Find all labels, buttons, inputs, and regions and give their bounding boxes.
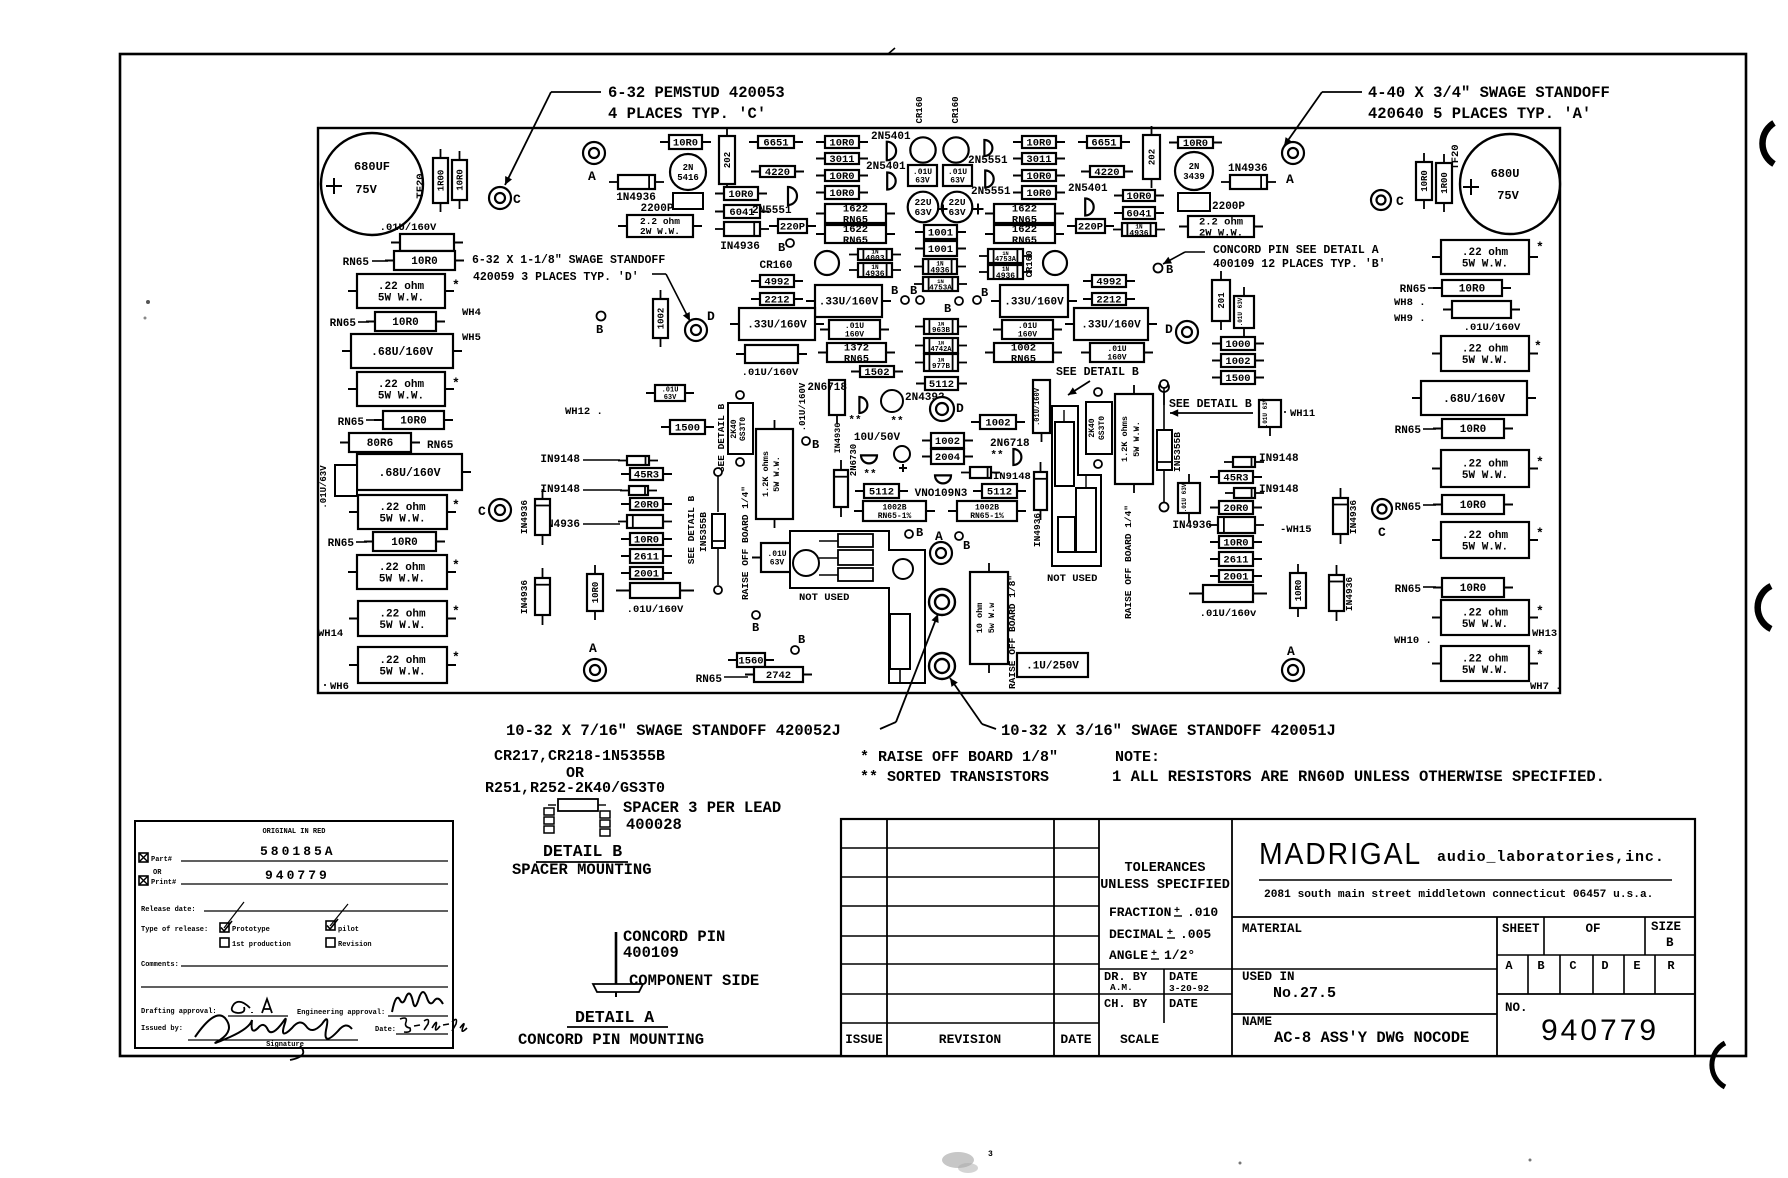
svg-text:.22 ohm: .22 ohm <box>379 655 426 667</box>
svg-text:.33U/160V: .33U/160V <box>819 297 879 309</box>
svg-text:10R0: 10R0 <box>673 138 698 150</box>
svg-text:63V: 63V <box>948 207 965 218</box>
svg-text:5W W.W.: 5W W.W. <box>1462 470 1508 482</box>
svg-text:Type of release:: Type of release: <box>141 926 208 934</box>
svg-text:pilot: pilot <box>338 926 359 934</box>
svg-text:80R6: 80R6 <box>367 438 393 450</box>
svg-text:IN4936: IN4936 <box>833 423 843 454</box>
svg-text:R251,R252-2K40/GS3T0: R251,R252-2K40/GS3T0 <box>485 780 665 797</box>
svg-text:*: * <box>1534 339 1542 354</box>
svg-text:2N5551: 2N5551 <box>971 186 1011 198</box>
svg-text:Part#: Part# <box>151 856 172 864</box>
svg-text:DECIMAL: DECIMAL <box>1109 927 1164 942</box>
svg-text:10-32 X 3/16" SWAGE STANDOFF 4: 10-32 X 3/16" SWAGE STANDOFF 420051J <box>1001 722 1336 740</box>
svg-text:B: B <box>752 621 759 635</box>
svg-text:75V: 75V <box>1497 189 1519 203</box>
svg-text:RN65: RN65 <box>1011 354 1036 366</box>
svg-text:ISSUE: ISSUE <box>845 1033 883 1047</box>
svg-text:2K40: 2K40 <box>730 419 739 438</box>
svg-text:Issued by:: Issued by: <box>141 1025 183 1033</box>
svg-text:WH7 .: WH7 . <box>1530 681 1562 693</box>
svg-text:6651: 6651 <box>1091 138 1116 150</box>
svg-text:10R0: 10R0 <box>591 582 601 604</box>
svg-text:2742: 2742 <box>766 670 791 682</box>
svg-text:4753A: 4753A <box>995 256 1017 264</box>
svg-text:B: B <box>596 323 603 337</box>
svg-text:5W W.W.: 5W W.W. <box>1132 421 1142 457</box>
svg-text:5416: 5416 <box>677 173 699 183</box>
svg-text:5W W.W.: 5W W.W. <box>1462 355 1508 367</box>
svg-text:*: * <box>1536 648 1544 663</box>
svg-text:10R0: 10R0 <box>411 256 437 268</box>
svg-text:10R0: 10R0 <box>1460 583 1486 595</box>
svg-text:RN65: RN65 <box>1395 584 1422 596</box>
svg-text:45R3: 45R3 <box>634 470 659 482</box>
svg-text:* RAISE OFF BOARD 1/8": * RAISE OFF BOARD 1/8" <box>860 749 1058 766</box>
svg-text:4936: 4936 <box>930 267 949 276</box>
svg-text:CR160: CR160 <box>915 96 925 123</box>
svg-text:WH11: WH11 <box>1290 408 1315 420</box>
svg-text:680U: 680U <box>1491 167 1520 181</box>
svg-text:5W W.W.: 5W W.W. <box>379 667 425 679</box>
svg-text:2N5551: 2N5551 <box>752 205 792 217</box>
svg-text:NO.: NO. <box>1505 1001 1528 1015</box>
svg-text:**: ** <box>890 416 903 428</box>
svg-text:6041: 6041 <box>1126 209 1151 221</box>
svg-text:10R0: 10R0 <box>1294 580 1304 602</box>
svg-text:1502: 1502 <box>864 367 889 379</box>
svg-text:2N5401: 2N5401 <box>1068 183 1108 195</box>
svg-text:5W W.W.: 5W W.W. <box>1462 542 1508 554</box>
svg-text:C: C <box>513 192 521 207</box>
svg-text:.01U 63V: .01U 63V <box>1262 398 1269 427</box>
svg-text:63V: 63V <box>950 176 965 185</box>
svg-text:RN65: RN65 <box>1395 502 1422 514</box>
svg-text:RN65: RN65 <box>338 417 365 429</box>
svg-text:RAISE OFF BOARD 1/4": RAISE OFF BOARD 1/4" <box>740 486 751 600</box>
svg-text:.01U/160V: .01U/160V <box>627 604 684 616</box>
svg-text:-WH15: -WH15 <box>1280 524 1312 536</box>
svg-text:RN65: RN65 <box>844 354 869 366</box>
svg-text:220P: 220P <box>780 222 805 234</box>
svg-text:IN4936: IN4936 <box>519 580 530 615</box>
svg-text:10R0: 10R0 <box>1460 424 1486 436</box>
svg-text:.33U/160V: .33U/160V <box>747 320 807 332</box>
svg-text:4992: 4992 <box>764 277 789 289</box>
svg-text:1002: 1002 <box>1225 356 1250 368</box>
svg-text:B: B <box>1537 959 1544 973</box>
svg-text:A: A <box>1286 172 1294 187</box>
svg-text:SIZE: SIZE <box>1651 920 1681 934</box>
svg-text:B: B <box>910 284 917 298</box>
svg-text:IN4936: IN4936 <box>1348 500 1359 535</box>
svg-text:1500: 1500 <box>675 423 700 435</box>
svg-text:RN65: RN65 <box>843 235 868 247</box>
svg-text:Release date:: Release date: <box>141 906 196 914</box>
svg-text:SCALE: SCALE <box>1120 1032 1159 1047</box>
svg-text:NAME: NAME <box>1242 1015 1272 1029</box>
svg-text:GS3T0: GS3T0 <box>739 417 748 441</box>
svg-text:160V: 160V <box>1018 330 1037 339</box>
svg-text:Comments:: Comments: <box>141 961 179 969</box>
svg-text:NOT USED: NOT USED <box>1047 573 1097 585</box>
svg-text:2N5401: 2N5401 <box>871 131 911 143</box>
svg-text:10R0: 10R0 <box>1459 284 1485 296</box>
svg-text:B: B <box>778 241 785 255</box>
svg-text:WH13: WH13 <box>1532 628 1557 640</box>
svg-text:45R3: 45R3 <box>1223 473 1248 485</box>
svg-text:Print#: Print# <box>151 879 176 887</box>
svg-text:B: B <box>981 286 988 300</box>
svg-text:63V: 63V <box>915 176 930 185</box>
svg-text:WH6: WH6 <box>330 681 349 693</box>
svg-text:IN4936: IN4936 <box>1032 513 1043 548</box>
svg-text:*: * <box>452 604 460 619</box>
svg-text:C: C <box>1378 525 1386 540</box>
svg-text:.33U/160V: .33U/160V <box>1004 297 1064 309</box>
svg-text:580185A: 580185A <box>260 844 336 859</box>
svg-text:TF20: TF20 <box>415 173 427 198</box>
svg-text:10R0: 10R0 <box>829 188 854 200</box>
svg-text:.01U/160V: .01U/160V <box>1034 387 1042 426</box>
svg-text:4753A: 4753A <box>929 285 952 293</box>
svg-text:RN65: RN65 <box>696 674 723 686</box>
svg-text:1001: 1001 <box>928 244 953 256</box>
svg-text:3: 3 <box>988 1150 993 1159</box>
svg-text:CR160: CR160 <box>951 96 961 123</box>
svg-text:1560: 1560 <box>738 656 763 668</box>
svg-text:4992: 4992 <box>1096 277 1121 289</box>
svg-text:*: * <box>1536 604 1544 619</box>
svg-text:.33U/160V: .33U/160V <box>1081 320 1141 332</box>
svg-text:IN4936: IN4936 <box>1172 520 1212 532</box>
svg-text:400109: 400109 <box>623 944 679 962</box>
svg-text:63V: 63V <box>664 394 677 402</box>
svg-text:Date:: Date: <box>375 1026 396 1034</box>
svg-text:NOTE:: NOTE: <box>1115 749 1160 766</box>
svg-text:202: 202 <box>1148 149 1158 165</box>
svg-text:.01U 63V: .01U 63V <box>1181 483 1188 512</box>
svg-text:B: B <box>798 633 805 647</box>
svg-text:2N5551: 2N5551 <box>968 155 1008 167</box>
svg-text:A: A <box>935 529 943 544</box>
svg-text:A.M.: A.M. <box>1110 982 1133 993</box>
svg-text:COMPONENT SIDE: COMPONENT SIDE <box>629 972 759 990</box>
svg-text:MADRIGAL: MADRIGAL <box>1259 836 1422 871</box>
svg-text:160V: 160V <box>845 330 864 339</box>
svg-text:10R0: 10R0 <box>392 317 418 329</box>
svg-text:IN9148: IN9148 <box>1259 453 1299 465</box>
svg-text:A: A <box>588 169 596 184</box>
svg-text:D: D <box>956 401 964 416</box>
svg-text:1R00: 1R00 <box>437 170 447 192</box>
svg-text:3011: 3011 <box>1026 154 1051 166</box>
svg-text:220P: 220P <box>1078 222 1103 234</box>
svg-text:WH10 .: WH10 . <box>1394 635 1432 647</box>
svg-text:5w W.w: 5w W.w <box>987 602 997 634</box>
svg-text:420640 5 PLACES TYP. 'A': 420640 5 PLACES TYP. 'A' <box>1368 105 1591 123</box>
svg-text:B: B <box>963 539 970 553</box>
svg-text:1 ALL RESISTORS ARE RN60D UNL: 1 ALL RESISTORS ARE RN60D UNLESS OTHERWI… <box>1112 768 1605 786</box>
svg-text:GS3T0: GS3T0 <box>1098 416 1107 440</box>
svg-text:.22 ohm: .22 ohm <box>1462 608 1509 620</box>
svg-text:RN65: RN65 <box>427 440 454 452</box>
svg-text:CR160: CR160 <box>1025 250 1035 277</box>
svg-text:1.2K ohms: 1.2K ohms <box>1120 416 1130 462</box>
svg-text:2212: 2212 <box>1096 295 1121 307</box>
svg-text:10R0: 10R0 <box>829 171 854 183</box>
svg-text:.22 ohm: .22 ohm <box>379 562 426 574</box>
svg-text:1002: 1002 <box>985 418 1010 430</box>
svg-text:10-32 X 7/16" SWAGE STANDOFF 4: 10-32 X 7/16" SWAGE STANDOFF 420052J <box>506 722 841 740</box>
svg-text:10R0: 10R0 <box>400 416 426 428</box>
svg-text:DATE: DATE <box>1060 1032 1091 1047</box>
svg-text:.01U/160V: .01U/160V <box>380 222 437 234</box>
svg-text:2001: 2001 <box>634 569 659 581</box>
svg-text:10R0: 10R0 <box>1183 138 1208 150</box>
svg-text:.01U/160V: .01U/160V <box>1464 322 1521 334</box>
svg-text:5112: 5112 <box>869 487 894 499</box>
svg-text:SEE DETAIL B: SEE DETAIL B <box>716 404 727 473</box>
svg-text:RN65: RN65 <box>343 257 370 269</box>
svg-text:6041: 6041 <box>729 207 754 219</box>
svg-text:.68U/160V: .68U/160V <box>371 346 433 359</box>
svg-text:1001: 1001 <box>928 228 953 240</box>
svg-text:*: * <box>452 498 460 513</box>
svg-text:1500: 1500 <box>1225 373 1250 385</box>
svg-text:SPACER 3 PER LEAD: SPACER 3 PER LEAD <box>623 799 781 817</box>
svg-text:Prototype: Prototype <box>232 926 270 934</box>
svg-text:IN9148: IN9148 <box>540 484 580 496</box>
svg-text:DETAIL B: DETAIL B <box>543 842 622 861</box>
svg-text:ORIGINAL IN RED: ORIGINAL IN RED <box>262 828 325 836</box>
svg-text:Signature: Signature <box>266 1041 304 1049</box>
svg-text:Revision: Revision <box>338 941 372 949</box>
svg-text:RN65: RN65 <box>330 318 357 330</box>
svg-text:AC-8 ASS'Y DWG NOCODE: AC-8 ASS'Y DWG NOCODE <box>1274 1029 1469 1047</box>
svg-text:2W W.W.: 2W W.W. <box>1199 228 1243 240</box>
svg-text:977B: 977B <box>932 363 951 371</box>
svg-text:C: C <box>478 504 486 519</box>
svg-text:2611: 2611 <box>1223 555 1248 567</box>
svg-text:Drafting approval:: Drafting approval: <box>141 1008 217 1016</box>
svg-text:TOLERANCES: TOLERANCES <box>1124 861 1205 876</box>
svg-text:.010: .010 <box>1187 905 1218 920</box>
svg-text:B: B <box>1166 263 1173 277</box>
svg-text:5W W.W.: 5W W.W. <box>379 514 425 526</box>
svg-text:A: A <box>1505 959 1513 973</box>
svg-text:1st production: 1st production <box>232 941 291 949</box>
svg-text:No.27.5: No.27.5 <box>1273 985 1336 1002</box>
svg-text:R: R <box>1667 959 1675 973</box>
svg-text:2N6718: 2N6718 <box>807 382 847 394</box>
svg-text:CONCORD PIN MOUNTING: CONCORD PIN MOUNTING <box>518 1031 704 1049</box>
svg-text:.01U/160V: .01U/160V <box>742 367 799 379</box>
svg-text:10 ohm: 10 ohm <box>975 603 985 634</box>
svg-text:SPACER MOUNTING: SPACER MOUNTING <box>512 861 652 879</box>
svg-text:DATE: DATE <box>1169 970 1198 984</box>
svg-text:RN65: RN65 <box>1012 235 1037 247</box>
svg-text:Engineering approval:: Engineering approval: <box>297 1009 385 1017</box>
svg-text:4936: 4936 <box>996 272 1015 281</box>
svg-text:400109 12 PLACES TYP. 'B': 400109 12 PLACES TYP. 'B' <box>1213 258 1386 271</box>
svg-text:FRACTION: FRACTION <box>1109 905 1171 920</box>
svg-text:*: * <box>1536 526 1544 541</box>
svg-text:A: A <box>1287 644 1295 659</box>
svg-text:20R0: 20R0 <box>1223 503 1248 515</box>
svg-text:.1U/250V: .1U/250V <box>1026 661 1079 673</box>
svg-text:OR: OR <box>153 869 162 877</box>
svg-text:400028: 400028 <box>626 816 682 834</box>
svg-text:DATE: DATE <box>1169 997 1198 1011</box>
svg-text:2200P: 2200P <box>1212 201 1245 213</box>
svg-text:5W W.W.: 5W W.W. <box>379 574 425 586</box>
svg-text:2N6718: 2N6718 <box>990 438 1030 450</box>
svg-text:D: D <box>707 309 715 324</box>
svg-text:D: D <box>1165 322 1173 337</box>
svg-text:ANGLE: ANGLE <box>1109 948 1148 963</box>
svg-text:2611: 2611 <box>634 552 659 564</box>
svg-text:SEE DETAIL B: SEE DETAIL B <box>1056 366 1139 379</box>
svg-text:10U/50V: 10U/50V <box>854 432 901 444</box>
svg-text:3439: 3439 <box>1183 172 1205 182</box>
svg-text:.22 ohm: .22 ohm <box>1462 530 1509 542</box>
svg-text:**: ** <box>863 469 876 481</box>
svg-text:E: E <box>1633 959 1640 973</box>
svg-text:963B: 963B <box>932 327 951 335</box>
svg-text:6-32 X 1-1/8" SWAGE STANDOFF: 6-32 X 1-1/8" SWAGE STANDOFF <box>472 254 665 267</box>
svg-text:2001: 2001 <box>1223 572 1248 584</box>
svg-text:2N: 2N <box>683 163 694 173</box>
svg-text:B: B <box>944 302 951 316</box>
svg-text:63V: 63V <box>770 558 785 567</box>
svg-text:.22 ohm: .22 ohm <box>1462 247 1509 259</box>
svg-text:1/2°: 1/2° <box>1164 948 1195 963</box>
svg-text:2081 south main street middlet: 2081 south main street middletown connec… <box>1264 889 1653 901</box>
svg-text:WH12 .: WH12 . <box>565 406 603 418</box>
svg-text:75V: 75V <box>355 183 377 197</box>
svg-text:*: * <box>1536 455 1544 470</box>
svg-text:5W W.W.: 5W W.W. <box>1462 259 1508 271</box>
svg-text:.22 ohm: .22 ohm <box>378 379 425 391</box>
svg-text:1.2K ohms: 1.2K ohms <box>761 451 771 497</box>
svg-text:2N6730: 2N6730 <box>849 444 859 476</box>
svg-text:WH14: WH14 <box>318 628 343 640</box>
svg-text:SEE DETAIL B: SEE DETAIL B <box>1169 398 1252 411</box>
svg-text:DETAIL A: DETAIL A <box>575 1008 654 1027</box>
svg-text:1N4936: 1N4936 <box>1228 163 1268 175</box>
svg-text:*: * <box>1536 240 1544 255</box>
svg-text:B: B <box>1666 936 1674 950</box>
svg-text:** SORTED TRANSISTORS: ** SORTED TRANSISTORS <box>860 769 1049 786</box>
svg-text:5W W.W.: 5W W.W. <box>378 293 424 305</box>
svg-text:.68U/160V: .68U/160V <box>378 467 440 480</box>
svg-text:*: * <box>452 650 460 665</box>
svg-text:.22 ohm: .22 ohm <box>379 502 426 514</box>
svg-text:*: * <box>452 376 460 391</box>
svg-text:CONCORD PIN SEE DETAIL A: CONCORD PIN SEE DETAIL A <box>1213 244 1379 257</box>
svg-text:10R0: 10R0 <box>1223 538 1248 550</box>
svg-text:10R0: 10R0 <box>391 537 417 549</box>
svg-text:RN65-1%: RN65-1% <box>970 512 1004 521</box>
svg-text:IN4936: IN4936 <box>1344 577 1355 612</box>
svg-text:.22 ohm: .22 ohm <box>379 609 426 621</box>
svg-text:D: D <box>1601 959 1608 973</box>
svg-text:C: C <box>1569 959 1576 973</box>
svg-text:2K40: 2K40 <box>1088 418 1097 437</box>
svg-text:5W W.W.: 5W W.W. <box>378 391 424 403</box>
svg-text:10R0: 10R0 <box>728 189 753 201</box>
svg-text:REVISION: REVISION <box>939 1032 1001 1047</box>
svg-text:.68U/160V: .68U/160V <box>1443 393 1505 406</box>
svg-text:C: C <box>1396 194 1404 209</box>
svg-text:*: * <box>452 278 460 293</box>
svg-text:.22 ohm: .22 ohm <box>1462 654 1509 666</box>
svg-text:2N: 2N <box>1189 162 1200 172</box>
svg-text:B: B <box>916 526 923 540</box>
svg-text:IN9148: IN9148 <box>1259 484 1299 496</box>
svg-text:4936: 4936 <box>865 270 884 279</box>
svg-text:5W W.W.: 5W W.W. <box>1462 665 1508 677</box>
svg-text:4936: 4936 <box>1129 230 1148 239</box>
svg-text:RN65-1%: RN65-1% <box>878 512 912 521</box>
svg-text:OF: OF <box>1585 922 1600 936</box>
svg-text:IN9148: IN9148 <box>540 454 580 466</box>
svg-text:**: ** <box>848 415 861 427</box>
svg-text:5112: 5112 <box>987 487 1012 499</box>
svg-text:WH8 .: WH8 . <box>1394 297 1426 309</box>
svg-text:10R0: 10R0 <box>1460 500 1486 512</box>
svg-text:WH9 .: WH9 . <box>1394 313 1426 325</box>
svg-text:420059 3 PLACES TYP. 'D': 420059 3 PLACES TYP. 'D' <box>473 271 639 284</box>
svg-text:IN5355B: IN5355B <box>698 512 709 552</box>
svg-text:VNO109N3: VNO109N3 <box>915 488 968 500</box>
svg-text:USED IN: USED IN <box>1242 970 1295 984</box>
svg-text:WH4: WH4 <box>462 307 481 319</box>
svg-text:4-40 X 3/4" SWAGE STANDOFF: 4-40 X 3/4" SWAGE STANDOFF <box>1368 84 1610 102</box>
svg-text:.22 ohm: .22 ohm <box>1462 459 1509 471</box>
svg-text:160V: 160V <box>1107 353 1126 362</box>
svg-text:4742A: 4742A <box>930 346 952 354</box>
svg-text:1002: 1002 <box>935 436 960 448</box>
svg-text:6-32 PEMSTUD 420053: 6-32 PEMSTUD 420053 <box>608 84 785 102</box>
svg-text:2W W.W.: 2W W.W. <box>640 226 680 237</box>
svg-text:1R00: 1R00 <box>1440 172 1450 194</box>
svg-text:5112: 5112 <box>929 379 954 391</box>
svg-text:IN4936: IN4936 <box>720 241 760 253</box>
svg-text:audio_laboratories,inc.: audio_laboratories,inc. <box>1437 849 1665 866</box>
svg-text:2200P: 2200P <box>640 203 673 215</box>
svg-text:RN65: RN65 <box>1395 425 1422 437</box>
svg-text:.005: .005 <box>1180 927 1211 942</box>
svg-text:1000: 1000 <box>1225 339 1250 351</box>
svg-text:.01U 63V: .01U 63V <box>1237 297 1244 326</box>
svg-text:SHEET: SHEET <box>1502 922 1540 936</box>
svg-text:IN9148: IN9148 <box>993 471 1031 483</box>
svg-text:IN4936: IN4936 <box>519 500 530 535</box>
svg-text:IN5355B: IN5355B <box>1172 432 1183 472</box>
svg-text:10R0: 10R0 <box>1126 191 1151 203</box>
svg-text:CR160: CR160 <box>759 260 792 272</box>
svg-text:2004: 2004 <box>935 452 960 464</box>
svg-text:.01U/160v: .01U/160v <box>1200 608 1257 620</box>
svg-text:202: 202 <box>723 152 733 168</box>
svg-text:10R0: 10R0 <box>1026 171 1051 183</box>
svg-text:**: ** <box>990 450 1003 462</box>
svg-text:5W W.W.: 5W W.W. <box>379 620 425 632</box>
svg-text:SEE DETAIL B: SEE DETAIL B <box>686 496 697 565</box>
svg-text:10R0: 10R0 <box>1026 138 1051 150</box>
